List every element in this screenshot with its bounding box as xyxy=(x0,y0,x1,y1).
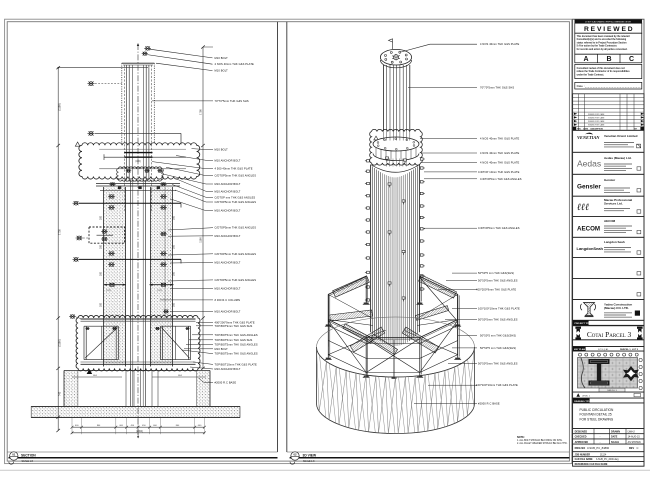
svg-text:Gensler: Gensler xyxy=(604,178,616,182)
svg-text:3-SUB_PC_84890: 3-SUB_PC_84890 xyxy=(587,446,610,450)
svg-text:under the Trade Contract.: under the Trade Contract. xyxy=(577,74,605,77)
svg-text:PROJECT TITLE: PROJECT TITLE xyxy=(575,323,593,325)
svg-text:M10 BOLT: M10 BOLT xyxy=(215,56,229,60)
svg-text:ISSUED FOR CASE: ISSUED FOR CASE xyxy=(588,116,605,119)
svg-text:DRAWN: DRAWN xyxy=(611,430,620,433)
svg-text:50*50*5mm THK G&S ANGLES: 50*50*5mm THK G&S ANGLES xyxy=(478,278,518,282)
svg-text:3D VIEW: 3D VIEW xyxy=(303,453,317,457)
svg-text:M10 BOLT: M10 BOLT xyxy=(215,69,229,73)
svg-text:2. ALL FILLET WELDED SHOULD B: 2. ALL FILLET WELDED SHOULD BE 6mm THK. xyxy=(517,442,568,445)
svg-text:PUBLIC CIRCULATION: PUBLIC CIRCULATION xyxy=(580,408,614,412)
svg-text:01: 01 xyxy=(12,453,16,457)
svg-text:4 NOS 40mm THK G&S PLATE: 4 NOS 40mm THK G&S PLATE xyxy=(480,161,520,165)
svg-text:M10 ANCHOR BOLT: M10 ANCHOR BOLT xyxy=(215,158,241,162)
svg-text:C/DTOP5mm THK G&S ANGLES: C/DTOP5mm THK G&S ANGLES xyxy=(215,174,257,178)
svg-text:300: 300 xyxy=(173,271,176,276)
svg-text:C/DTOP 10mm THK G&S PLATE: C/DTOP 10mm THK G&S PLATE xyxy=(478,170,520,174)
svg-text:FOUNTAIN DETAIL 25: FOUNTAIN DETAIL 25 xyxy=(580,413,612,417)
svg-text:#2000 R.C BASE: #2000 R.C BASE xyxy=(215,381,237,385)
svg-text:JOB NUMBER: JOB NUMBER xyxy=(575,454,591,456)
svg-text:4 500 40mm THK G&S PLATE: 4 500 40mm THK G&S PLATE xyxy=(215,167,253,171)
svg-text:Aedas (Macau) Ltd.: Aedas (Macau) Ltd. xyxy=(604,156,632,160)
svg-text:(1160): (1160) xyxy=(58,339,62,346)
svg-text:SCALE 1:8: SCALE 1:8 xyxy=(22,460,34,463)
svg-text:300: 300 xyxy=(173,215,176,220)
svg-text:50*50*5mm THK G&S ANGLES: 50*50*5mm THK G&S ANGLES xyxy=(478,318,518,322)
svg-text:M10 ANCHOR BOLT: M10 ANCHOR BOLT xyxy=(215,309,241,313)
svg-text:AECOM: AECOM xyxy=(604,219,616,223)
svg-text:#2000 R.C BASE: #2000 R.C BASE xyxy=(478,402,500,406)
svg-text:TOP/BOT5mm THK G&S ANGLES: TOP/BOT5mm THK G&S ANGLES xyxy=(215,352,258,356)
svg-text:M10 ANCHOR BOLT: M10 ANCHOR BOLT xyxy=(215,189,241,193)
svg-text:AECOM: AECOM xyxy=(577,226,600,233)
svg-text:M10 ANCHOR BOLT: M10 ANCHOR BOLT xyxy=(215,234,241,238)
svg-text:300: 300 xyxy=(100,271,103,276)
svg-text:M10 ANCHOR BOLT: M10 ANCHOR BOLT xyxy=(215,260,241,264)
svg-text:C/DTOP5mm THK G&S ANGLES: C/DTOP5mm THK G&S ANGLES xyxy=(215,252,257,256)
svg-text:1730: 1730 xyxy=(58,229,62,235)
svg-text:Consultant review of this docu: Consultant review of this document does … xyxy=(577,67,625,70)
svg-text:M10 BOLT: M10 BOLT xyxy=(215,148,229,152)
svg-text:AS SHOWN: AS SHOWN xyxy=(628,441,641,444)
svg-text:ISSUED FOR CASE: ISSUED FOR CASE xyxy=(588,113,605,116)
svg-text:FOR STEEL DRAWING: FOR STEEL DRAWING xyxy=(580,417,614,421)
svg-text:5.4 for action by the Trade Co: 5.4 for action by the Trade Contractor. xyxy=(577,45,618,48)
svg-text:REFERENCE CAD FILE NAME: REFERENCE CAD FILE NAME xyxy=(575,463,608,466)
svg-text:3-SUB_PC_2000.dwg: 3-SUB_PC_2000.dwg xyxy=(596,459,619,461)
svg-text:(TYP): (TYP) xyxy=(106,290,112,292)
svg-text:4 NOS 40mm THK G&S PLATE: 4 NOS 40mm THK G&S PLATE xyxy=(480,151,520,155)
svg-text:C/DTOP mm THK G&S ANGLES: C/DTOP mm THK G&S ANGLES xyxy=(215,195,256,199)
svg-text:50*50*5 mm THK G&S(SHS): 50*50*5 mm THK G&S(SHS) xyxy=(480,346,516,350)
svg-text:1. ALL BOLT SHOULD BE FIXING: 1. ALL BOLT SHOULD BE FIXING ON SITE. xyxy=(517,439,563,442)
svg-text:50*50*5 mm THK G&S(SHS): 50*50*5 mm THK G&S(SHS) xyxy=(480,333,516,337)
svg-text:C: C xyxy=(637,446,639,450)
svg-text:300: 300 xyxy=(100,215,103,220)
svg-text:(1189): (1189) xyxy=(58,103,62,110)
svg-text:Aedas: Aedas xyxy=(577,159,601,169)
svg-text:Services Ltd.: Services Ltd. xyxy=(604,202,623,206)
svg-text:300: 300 xyxy=(173,244,176,249)
svg-text:70*70*5mm THK G&S SHS: 70*70*5mm THK G&S SHS xyxy=(480,86,514,90)
svg-text:300: 300 xyxy=(100,244,103,249)
svg-text:REV: REV xyxy=(629,447,634,450)
svg-text:ISSUED FOR CASE: ISSUED FOR CASE xyxy=(588,120,605,123)
svg-text:TOP/BOT5mm THK G&S ANGLES: TOP/BOT5mm THK G&S ANGLES xyxy=(215,343,258,347)
svg-text:1160: 1160 xyxy=(198,237,202,243)
svg-text:R E V I E W E D: R E V I E W E D xyxy=(584,26,633,33)
svg-text:CHECKED: CHECKED xyxy=(575,436,587,439)
svg-text:M10 ANCHOR BOLT: M10 ANCHOR BOLT xyxy=(215,182,241,186)
svg-text:C: C xyxy=(629,56,634,63)
svg-text:31124: 31124 xyxy=(600,454,607,456)
svg-text:status referred to in Proj: status referred to in Project Procedure … xyxy=(577,41,628,44)
svg-text:100*100*10mm THK G&S PLATE: 100*100*10mm THK G&S PLATE xyxy=(476,383,518,387)
svg-text:(2064): (2064) xyxy=(136,431,143,433)
svg-text:Gensler: Gensler xyxy=(577,184,601,191)
svg-text:VENETIAN: VENETIAN xyxy=(577,135,600,140)
svg-text:1780: 1780 xyxy=(198,109,202,115)
svg-text:NOTE:: NOTE: xyxy=(517,436,525,439)
svg-text:for records and action by all: for records and action by all parties co… xyxy=(577,48,628,51)
svg-text:Venetian Orient Limited: Venetian Orient Limited xyxy=(604,134,638,138)
svg-text:DRAWING TITLE: DRAWING TITLE xyxy=(574,400,592,403)
svg-text:LEVEL 1: LEVEL 1 xyxy=(582,395,591,397)
svg-text:50*50*5mm THK G&S ANGLES: 50*50*5mm THK G&S ANGLES xyxy=(478,361,518,365)
svg-text:SCALE 1:8: SCALE 1:8 xyxy=(303,460,315,463)
svg-text:LangdonSeah: LangdonSeah xyxy=(577,246,604,251)
svg-text:Langdon Seah: Langdon Seah xyxy=(604,240,625,244)
svg-text:50*50*5 mm THK G&S(SHS): 50*50*5 mm THK G&S(SHS) xyxy=(478,271,514,275)
svg-text:ISSUED FOR CASE: ISSUED FOR CASE xyxy=(588,124,605,127)
svg-text:B: B xyxy=(606,56,611,63)
svg-text:ℓℓℓ: ℓℓℓ xyxy=(577,203,589,213)
svg-text:70*70*5mm THK G&S SHS: 70*70*5mm THK G&S SHS xyxy=(215,99,249,103)
svg-text:(400): (400) xyxy=(135,161,141,163)
svg-text:100*100*10mm THK G&S PLATE: 100*100*10mm THK G&S PLATE xyxy=(478,307,520,311)
svg-text:DATE: DATE xyxy=(611,436,618,439)
svg-text:02: 02 xyxy=(293,453,297,457)
svg-text:300: 300 xyxy=(173,302,176,307)
svg-text:LW/HJ: LW/HJ xyxy=(628,430,636,433)
svg-text:APPROVED: APPROVED xyxy=(575,441,589,444)
svg-text:4 NOS 40mm THK G&S PLATE: 4 NOS 40mm THK G&S PLATE xyxy=(480,42,520,46)
svg-text:SCALE: SCALE xyxy=(611,441,620,444)
svg-text:relieve the Trade Contractor o: relieve the Trade Contractor of its resp… xyxy=(577,70,631,73)
svg-text:This document has been reviewe: This document has been reviewed by the r… xyxy=(577,35,630,38)
svg-text:14-AUG-15: 14-AUG-15 xyxy=(628,436,641,439)
svg-text:M10 ANCHOR BOLT: M10 ANCHOR BOLT xyxy=(215,287,241,291)
svg-text:Date :: Date : xyxy=(577,84,585,88)
svg-text:A: A xyxy=(583,56,588,63)
svg-text:Consultant(s)(s) and is accord: Consultant(s)(s) and is accorded the fol… xyxy=(577,38,627,41)
svg-text:C/DTOP5mm THK G&S ANGLES: C/DTOP5mm THK G&S ANGLES xyxy=(215,278,257,282)
svg-text:4 NOS 40mm THK G&S PLATE: 4 NOS 40mm THK G&S PLATE xyxy=(480,136,520,140)
svg-text:C/DTOP5mm THK G&S ANGLES: C/DTOP5mm THK G&S ANGLES xyxy=(478,226,520,230)
svg-text:TOP/BOT5mm THK G&S ANGLES: TOP/BOT5mm THK G&S ANGLES xyxy=(215,333,258,337)
svg-text:745: 745 xyxy=(58,391,62,396)
svg-text:300: 300 xyxy=(100,302,103,307)
svg-text:(TYP): (TYP) xyxy=(157,290,163,292)
svg-text:(Macau) CO. LTD.: (Macau) CO. LTD. xyxy=(604,306,629,310)
svg-text:SECTION: SECTION xyxy=(21,453,36,457)
svg-text:DWG NO: DWG NO xyxy=(575,447,586,450)
svg-text:TOP/BOT5mm THK G&S SHS: TOP/BOT5mm THK G&S SHS xyxy=(215,338,253,342)
svg-text:M10 ANCHOR BOLT: M10 ANCHOR BOLT xyxy=(215,209,241,213)
svg-text:4 NOS 40mm THK G&S PLATE: 4 NOS 40mm THK G&S PLATE xyxy=(215,62,255,66)
svg-text:M10 ANCHOR BOLT: M10 ANCHOR BOLT xyxy=(215,367,241,371)
svg-text:TOP/BOT10mm THK G&S PLATE: TOP/BOT10mm THK G&S PLATE xyxy=(215,362,257,366)
svg-text:TOP/BOT9mm THK G&S SHS: TOP/BOT9mm THK G&S SHS xyxy=(215,324,253,328)
svg-text:C/DTOP5mm THK G&S ANGLES: C/DTOP5mm THK G&S ANGLES xyxy=(480,177,522,181)
svg-text:400*200*9mm THK G&S PLATE: 400*200*9mm THK G&S PLATE xyxy=(476,288,516,292)
svg-text:M10 BOLT: M10 BOLT xyxy=(215,347,229,351)
svg-text:DESIGNED: DESIGNED xyxy=(575,430,588,433)
svg-text:C/DTOP5mm THK G&S ANGLES: C/DTOP5mm THK G&S ANGLES xyxy=(215,226,257,230)
svg-text:C/DTOP5mm THK G&S ANGLES: C/DTOP5mm THK G&S ANGLES xyxy=(215,200,257,204)
svg-text:PARCEL 3: PARCEL 3 xyxy=(607,389,617,392)
svg-text:# 300 R.C COLUMN: # 300 R.C COLUMN xyxy=(215,298,241,302)
svg-text:Cotai Parcel 3: Cotai Parcel 3 xyxy=(587,330,632,339)
svg-text:CAD FILE NAME: CAD FILE NAME xyxy=(575,458,593,461)
